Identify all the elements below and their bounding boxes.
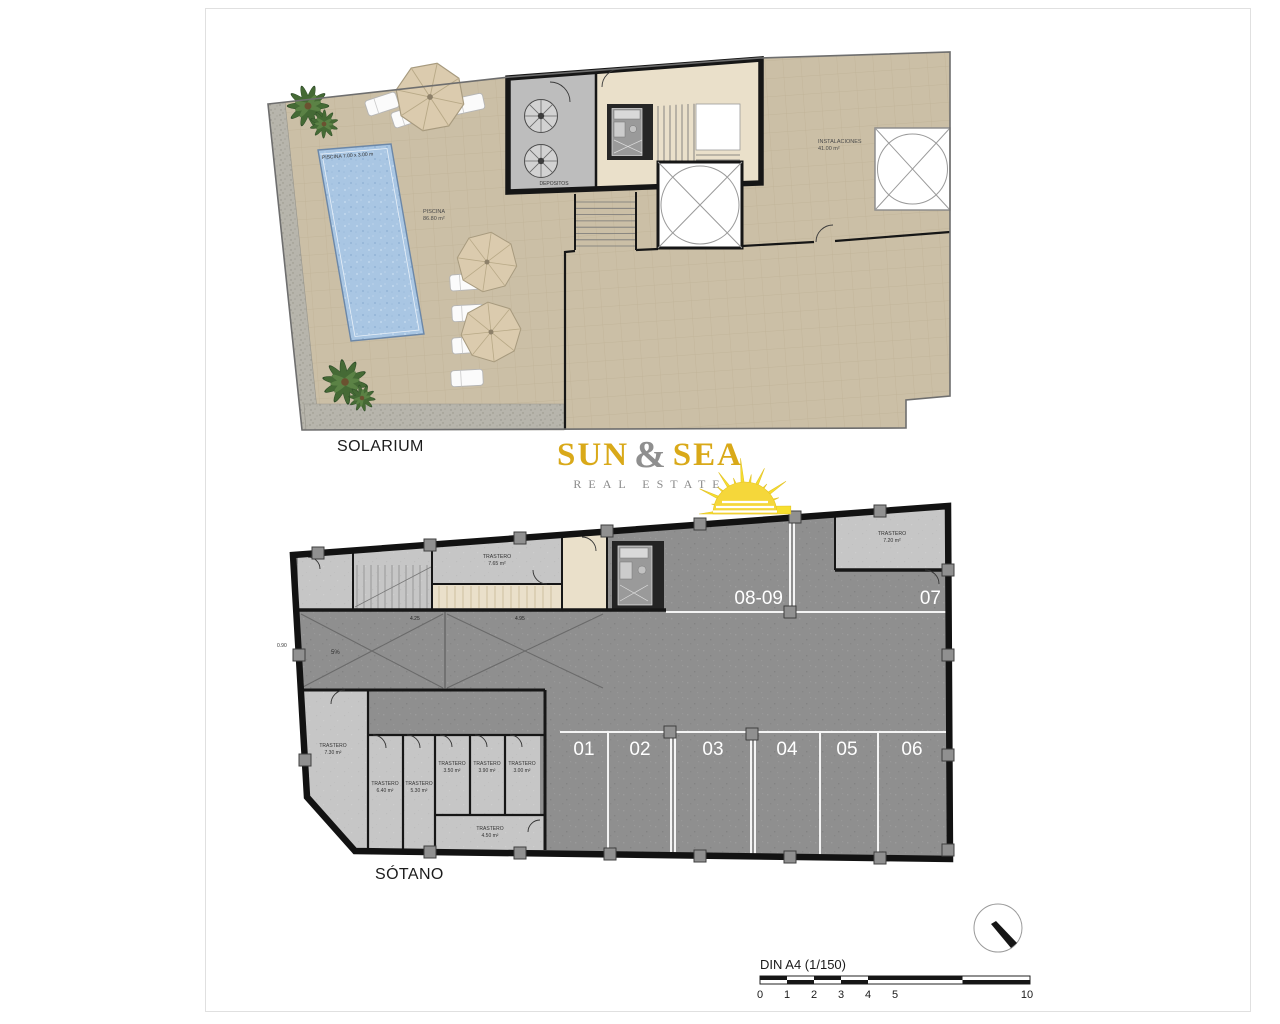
trastero-390-name: TRASTERO: [473, 761, 500, 767]
skylight-shaft: [658, 162, 742, 248]
trastero-300-name: TRASTERO: [508, 761, 535, 767]
solarium-floorplan: PISCINA 7.00 x 3.00 m PISCINA 86.80 m² D…: [258, 42, 958, 452]
instalaciones-area-label: 41.00 m²: [818, 146, 840, 152]
parking-spot-label: 05: [836, 739, 857, 760]
terrace-name-label: PISCINA: [423, 209, 445, 215]
trastero-left-name: TRASTERO: [319, 743, 346, 749]
trastero-450-area: 4.50 m²: [482, 833, 499, 839]
parking-spot-label: 01: [573, 739, 594, 760]
skylight-shaft: [875, 128, 950, 210]
parking-spot-label: 07: [920, 588, 941, 609]
trastero-top-name: TRASTERO: [483, 554, 511, 560]
logo-word-sun: SUN: [557, 437, 629, 473]
trastero-530-area: 5.30 m²: [411, 788, 428, 794]
dim-left: 0.90: [277, 643, 287, 649]
trastero-top-area: 7.65 m²: [488, 561, 506, 567]
parking-spot-label: 02: [629, 739, 650, 760]
dim-bay1: 4.25: [410, 616, 420, 622]
scale-tick: 3: [838, 989, 844, 1001]
depositos-room: [510, 73, 596, 191]
trastero-350-area: 3.50 m²: [444, 768, 461, 774]
trastero-390-area: 3.90 m²: [479, 768, 496, 774]
scale-tick: 2: [811, 989, 817, 1001]
parking-spot-label: 04: [776, 739, 798, 760]
parking-spot-label: 08-09: [734, 588, 783, 609]
compass-icon: [974, 904, 1022, 952]
dim-bay2: 4.95: [515, 616, 525, 622]
scale-bar: [760, 976, 1030, 984]
scale-tick: 5: [892, 989, 898, 1001]
trastero-640-name: TRASTERO: [371, 781, 398, 787]
instalaciones-name-label: INSTALACIONES: [818, 139, 862, 145]
scale-ticks: 0 1 2 3 4 5 10: [757, 989, 1033, 1001]
scale-tick: 0: [757, 989, 763, 1001]
trastero-530-name: TRASTERO: [405, 781, 432, 787]
sun-icon: [650, 452, 860, 532]
scale-label: DIN A4 (1/150): [760, 957, 846, 972]
parking-spot-label: 03: [702, 739, 723, 760]
sotano-floorplan: 5% 4.25 4.95 0.90 TRASTERO 7.65 m²: [285, 487, 975, 882]
sotano-title: SÓTANO: [375, 866, 444, 884]
trastero-topright-name: TRASTERO: [878, 531, 906, 537]
brand-logo: SUN&SEA REAL ESTATE: [540, 452, 760, 492]
scale-and-compass: DIN A4 (1/150) 0 1 2 3 4 5 10: [755, 890, 1055, 1015]
scale-tick: 4: [865, 989, 871, 1001]
trastero-640-area: 6.40 m²: [377, 788, 394, 794]
depositos-label: DEPOSITOS: [539, 181, 569, 187]
elevator: [607, 104, 653, 160]
ramp-slope-label: 5%: [331, 650, 340, 656]
trastero-350-name: TRASTERO: [438, 761, 465, 767]
scale-tick: 10: [1021, 989, 1033, 1001]
trastero-450-name: TRASTERO: [476, 826, 503, 832]
trastero-topright-area: 7.20 m²: [883, 538, 901, 544]
parking-spot-label: 06: [901, 739, 922, 760]
elevator: [612, 541, 664, 610]
trastero-left-area: 7.30 m²: [325, 750, 342, 756]
terrace-area-label: 86.80 m²: [423, 216, 445, 222]
trastero-300-area: 3.00 m²: [514, 768, 531, 774]
solarium-title: SOLARIUM: [337, 438, 424, 456]
floorplan-page: PISCINA 7.00 x 3.00 m PISCINA 86.80 m² D…: [0, 0, 1280, 1024]
scale-tick: 1: [784, 989, 790, 1001]
